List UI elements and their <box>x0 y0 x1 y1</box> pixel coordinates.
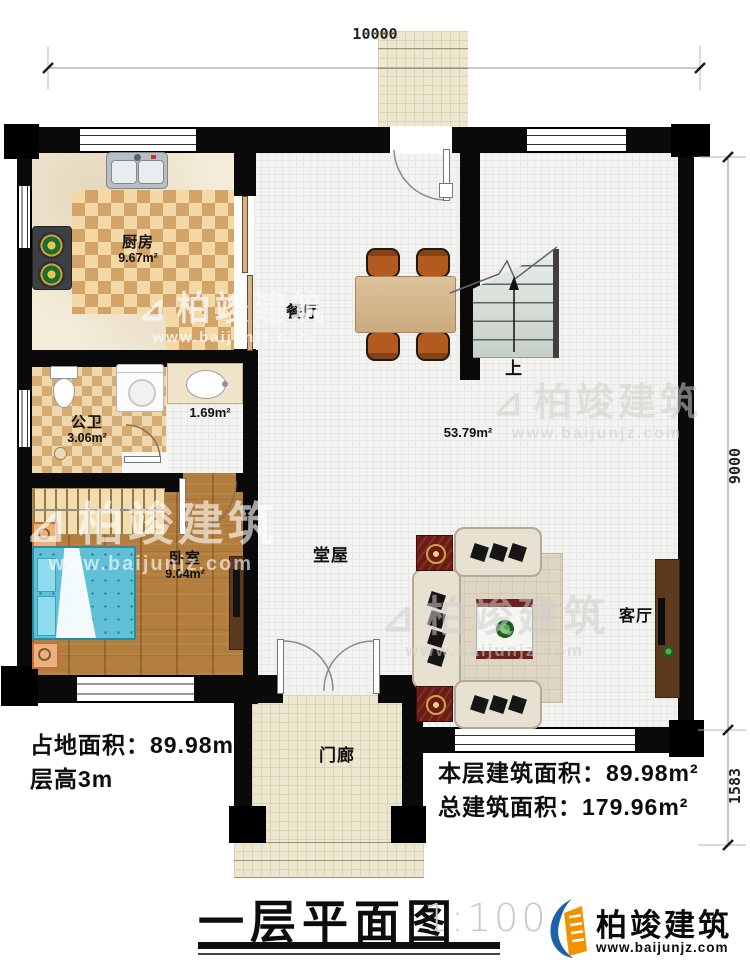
dimension-tick <box>695 63 705 73</box>
sink-faucet <box>134 154 141 161</box>
kitchen-sliding-door-panel <box>247 275 253 351</box>
room-area: 1.69m² <box>189 406 230 421</box>
basin-faucet <box>222 381 228 387</box>
lamp <box>38 648 51 661</box>
gas-stove <box>32 226 72 290</box>
sofa-pillow <box>470 695 489 714</box>
toilet-bowl <box>53 378 75 408</box>
step-line <box>234 877 424 878</box>
window <box>17 186 32 248</box>
room-area: 53.79m² <box>444 426 492 441</box>
porch-column <box>391 806 426 843</box>
washer-panel-line <box>117 372 163 373</box>
dimension-right-main: 9000 <box>726 436 744 496</box>
title-rule-thick <box>198 942 500 949</box>
room-name: 客厅 <box>619 608 653 626</box>
room-name: 餐厅 <box>286 304 320 322</box>
dimension-tick <box>723 725 733 735</box>
bedroom-door-leaf <box>179 478 186 535</box>
dining-chair <box>416 248 450 278</box>
side-table <box>416 686 453 722</box>
stair-stringer <box>553 249 559 358</box>
room-area: 9.67m² <box>118 251 158 265</box>
double-door-leaf <box>277 639 284 694</box>
room-name: 卧室 <box>169 550 201 567</box>
wall-segment <box>234 127 256 196</box>
brand-url: www.baijunjz.com <box>596 940 729 955</box>
step-line <box>234 860 424 861</box>
coffee-table <box>476 599 533 659</box>
title-rule-thin <box>198 953 500 955</box>
room-label-living: 客厅 <box>604 606 668 628</box>
bed-pillow <box>37 558 56 592</box>
wall-segment <box>236 473 258 492</box>
dimension-tick <box>43 63 53 73</box>
porch-steps <box>234 842 424 878</box>
room-label-kitchen: 厨房 9.67m² <box>100 232 176 268</box>
annotation-floor-area: 本层建筑面积：89.98m² <box>438 754 699 788</box>
sink-basin <box>111 160 137 184</box>
step-line <box>378 68 468 69</box>
window <box>77 675 194 703</box>
double-door-leaf <box>373 639 380 694</box>
dining-chair <box>366 331 400 361</box>
sofa-pillow <box>489 695 508 714</box>
room-area: 3.06m² <box>67 431 107 445</box>
room-label-hall: 堂屋 <box>298 544 364 568</box>
room-name: 堂屋 <box>313 546 349 566</box>
annotation-site-area: 占地面积：89.98m² <box>30 726 243 760</box>
room-label-porch: 门廊 <box>302 744 372 768</box>
tv-cabinet <box>655 559 680 698</box>
kitchen-sink <box>106 152 168 189</box>
washer-drum <box>128 379 156 407</box>
room-label-bedroom: 卧室 9.04m² <box>148 548 222 584</box>
dimension-top: 10000 <box>339 25 411 43</box>
sofa-pillow <box>470 543 489 562</box>
annotation-floor-height: 层高3m <box>30 760 113 794</box>
sink-basin <box>138 160 164 184</box>
kitchen-tile-floor-ext <box>166 314 234 352</box>
sofa-pillow <box>427 591 446 610</box>
floor-drain <box>54 447 67 460</box>
dimension-tick <box>723 840 733 850</box>
nightstand <box>32 522 58 548</box>
floor-plan-page: 厨房 9.67m² 餐厅 公卫 3.06m² 1.69m² 堂屋 53.79m²… <box>0 0 750 967</box>
entry-steps-top <box>378 31 468 128</box>
sofa <box>454 680 542 729</box>
sofa-pillow <box>508 543 527 562</box>
brand-name: 柏竣建筑 <box>596 900 732 945</box>
bedroom-tv <box>233 569 240 617</box>
vanity-counter <box>167 363 243 404</box>
window <box>17 390 32 447</box>
room-label-hall-area: 53.79m² <box>432 424 504 442</box>
sofa-pillow <box>427 629 446 648</box>
room-name: 公卫 <box>71 414 103 431</box>
lamp <box>38 528 50 540</box>
wardrobe-rail <box>33 509 164 511</box>
bedroom-tv-stand <box>229 556 244 650</box>
sofa-pillow <box>508 695 527 714</box>
room-name: 厨房 <box>122 234 154 251</box>
stove-burner <box>38 232 65 259</box>
room-area: 9.04m² <box>165 567 205 581</box>
stairs-up-label: 上 <box>500 357 528 381</box>
room-label-bathroom: 公卫 3.06m² <box>58 412 116 448</box>
porch-floor <box>252 695 402 842</box>
plant <box>663 646 674 657</box>
room-label-washroom: 1.69m² <box>178 404 242 422</box>
side-table <box>416 535 453 571</box>
room-name: 上 <box>505 359 523 379</box>
wall-segment <box>678 127 694 755</box>
sofa-pillow <box>489 543 508 562</box>
kitchen-sliding-door-panel <box>242 196 248 273</box>
door-closer <box>439 183 453 198</box>
dining-chair <box>366 248 400 278</box>
washing-machine <box>116 364 164 412</box>
window <box>455 727 635 753</box>
corner-column <box>4 124 39 159</box>
wall-segment <box>243 362 258 704</box>
sofa-pillow <box>427 610 446 629</box>
dimension-tick <box>723 152 733 162</box>
dimension-right-porch: 1583 <box>726 756 744 816</box>
bed <box>32 546 136 640</box>
wash-basin <box>186 370 226 399</box>
sink-detail <box>151 155 156 159</box>
nightstand <box>32 642 59 669</box>
dining-table <box>355 276 456 333</box>
corner-column <box>1 666 38 706</box>
step-line <box>378 48 468 49</box>
sofa-pillow <box>427 648 446 667</box>
bed-pillow <box>37 596 56 636</box>
annotation-total-area: 总建筑面积：179.96m² <box>438 788 688 822</box>
sofa <box>412 569 461 689</box>
sofa <box>454 527 542 577</box>
bathroom-door-leaf <box>124 456 161 463</box>
drawing-scale: 1:100 <box>424 896 549 940</box>
plant <box>493 617 517 641</box>
porch-column <box>229 806 266 843</box>
window <box>527 127 626 153</box>
room-label-dining: 餐厅 <box>270 302 336 324</box>
bed-sheet-fold <box>56 548 98 638</box>
dining-chair <box>416 331 450 361</box>
window <box>80 127 196 153</box>
room-name: 门廊 <box>319 746 355 766</box>
corner-column <box>671 124 710 157</box>
stove-burner <box>38 261 65 288</box>
brand-logo-icon <box>544 895 592 959</box>
corner-column <box>669 720 704 757</box>
toilet <box>50 366 78 410</box>
